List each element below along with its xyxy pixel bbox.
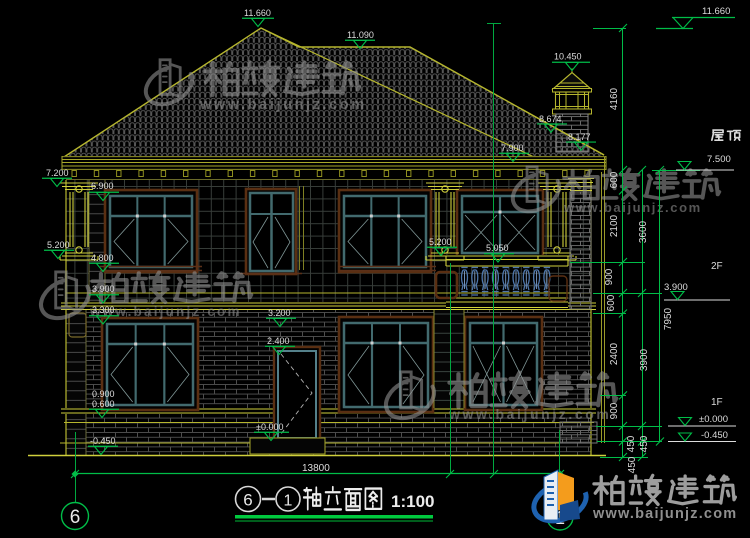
svg-text:2.400: 2.400 [267,336,290,346]
svg-text:900: 900 [604,268,615,285]
svg-text:www.baijunjz.com: www.baijunjz.com [563,200,702,215]
svg-text:4160: 4160 [609,87,620,110]
svg-text:600: 600 [606,294,617,311]
svg-text:3900: 3900 [639,348,650,371]
svg-text:7.500: 7.500 [707,154,731,165]
svg-text:11.090: 11.090 [347,30,374,40]
svg-text:6: 6 [70,507,81,528]
svg-text:5.200: 5.200 [429,237,452,247]
svg-text:8.177: 8.177 [568,132,591,142]
svg-text:3.900: 3.900 [92,284,115,294]
svg-text:13800: 13800 [302,463,330,474]
svg-text:7950: 7950 [663,307,674,330]
svg-text:±0.000: ±0.000 [699,414,728,425]
svg-text:1F: 1F [711,397,723,408]
svg-text:±0.000: ±0.000 [256,422,283,432]
svg-text:5.050: 5.050 [486,243,509,253]
svg-text:www.baijunjz.com: www.baijunjz.com [448,406,611,422]
svg-text:900: 900 [609,402,620,419]
svg-text:5.200: 5.200 [47,240,70,250]
svg-text:1:100: 1:100 [391,492,434,511]
svg-text:6: 6 [243,491,252,510]
svg-text:450: 450 [639,435,650,452]
svg-text:3600: 3600 [638,220,649,243]
svg-text:0.600: 0.600 [92,399,115,409]
svg-text:-0.450: -0.450 [701,430,728,441]
svg-text:8.674: 8.674 [539,114,562,124]
svg-text:2100: 2100 [609,214,620,237]
svg-text:4.800: 4.800 [91,253,114,263]
svg-text:11.660: 11.660 [244,8,271,18]
svg-text:1: 1 [284,493,293,510]
svg-text:2400: 2400 [609,342,620,365]
svg-text:450: 450 [627,456,638,473]
svg-text:0.900: 0.900 [92,389,115,399]
svg-text:600: 600 [609,171,620,188]
svg-text:2F: 2F [711,261,723,272]
svg-text:-0.450: -0.450 [90,436,116,446]
svg-text:7.200: 7.200 [46,168,69,178]
svg-text:450: 450 [626,435,637,452]
svg-text:3.300: 3.300 [92,305,115,315]
svg-text:6.900: 6.900 [91,181,114,191]
svg-text:11.660: 11.660 [702,6,730,17]
svg-text:www.baijunjz.com: www.baijunjz.com [199,97,367,113]
svg-text:www.baijunjz.com: www.baijunjz.com [592,506,737,522]
svg-text:3.200: 3.200 [268,308,291,318]
svg-text:7.900: 7.900 [501,143,524,153]
svg-text:10.450: 10.450 [554,52,582,62]
